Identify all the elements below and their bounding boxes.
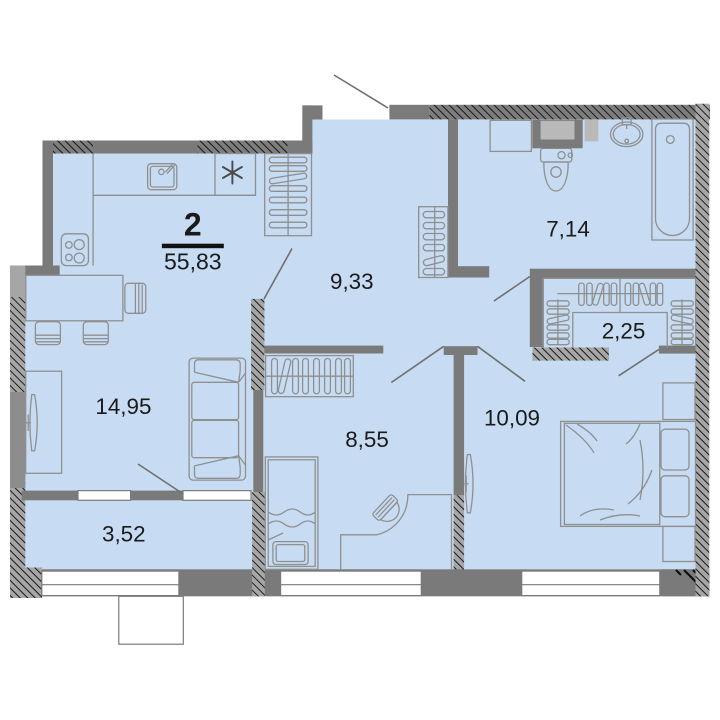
svg-text:14,95: 14,95 (95, 394, 151, 419)
svg-text:2: 2 (184, 207, 202, 243)
svg-text:10,09: 10,09 (484, 405, 540, 430)
svg-text:2,25: 2,25 (602, 318, 646, 343)
svg-text:55,83: 55,83 (164, 249, 222, 275)
svg-text:9,33: 9,33 (330, 269, 374, 294)
svg-text:3,52: 3,52 (102, 522, 146, 547)
svg-text:7,14: 7,14 (546, 217, 590, 242)
svg-text:8,55: 8,55 (345, 427, 389, 452)
